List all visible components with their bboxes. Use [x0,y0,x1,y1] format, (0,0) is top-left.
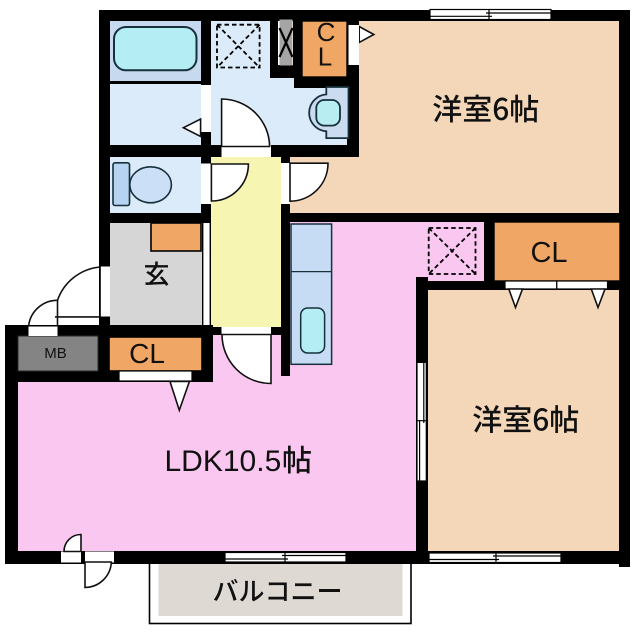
svg-text:CL: CL [129,338,165,369]
svg-text:CL: CL [530,237,567,269]
svg-text:L: L [318,42,332,72]
svg-text:LDK10.5: LDK10.5 [165,445,282,478]
svg-text:MB: MB [44,345,67,362]
